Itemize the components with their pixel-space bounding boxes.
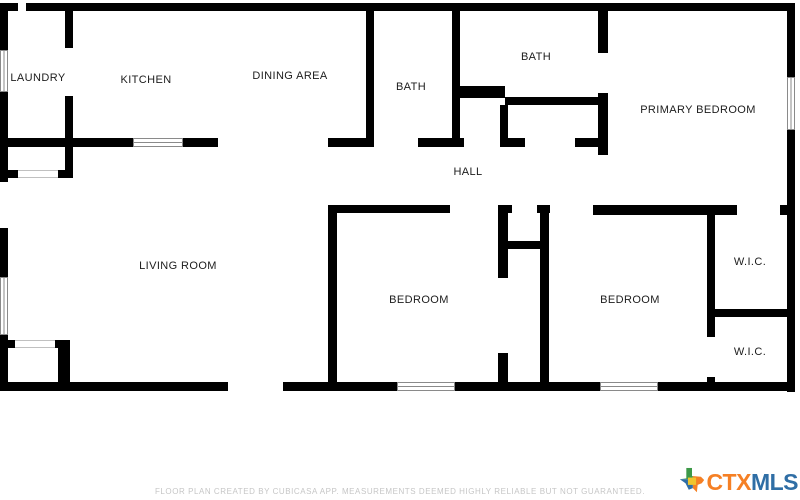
window-icon	[133, 138, 183, 147]
wall-segment	[508, 241, 540, 249]
wall-segment	[787, 3, 795, 77]
wall-segment	[537, 205, 550, 213]
wall-segment	[283, 382, 397, 391]
wall-segment	[418, 138, 464, 147]
wall-segment	[0, 228, 8, 277]
wall-segment	[8, 138, 133, 147]
wall-segment	[498, 353, 508, 382]
wall-segment	[658, 382, 795, 391]
wall-segment	[65, 8, 73, 48]
wall-segment	[455, 86, 505, 98]
room-label-bedroom-2: BEDROOM	[600, 294, 660, 306]
wall-segment	[452, 8, 460, 138]
room-label-wic-2: W.I.C.	[734, 346, 766, 358]
ctxmls-logo: CTX MLS	[679, 467, 798, 497]
window-icon	[0, 277, 8, 335]
wall-segment	[780, 205, 795, 215]
room-label-dining-area: DINING AREA	[252, 70, 327, 82]
wall-segment	[575, 138, 598, 147]
window-icon	[787, 77, 795, 130]
wall-segment	[505, 97, 603, 105]
wall-segment	[0, 3, 8, 50]
wall-segment	[455, 382, 600, 391]
wall-segment	[328, 138, 374, 147]
wall-segment	[58, 342, 70, 382]
wall-segment	[540, 213, 549, 382]
wall-segment	[0, 382, 228, 391]
wall-segment	[500, 105, 508, 138]
floor-plan-image: LAUNDRYKITCHENDINING AREABATHBATHPRIMARY…	[0, 0, 800, 500]
room-label-hall: HALL	[453, 166, 482, 178]
wall-segment	[598, 93, 608, 155]
room-label-living-room: LIVING ROOM	[139, 260, 217, 272]
room-label-bath-1: BATH	[396, 81, 426, 93]
floor-plan-canvas: LAUNDRYKITCHENDINING AREABATHBATHPRIMARY…	[0, 0, 800, 460]
wall-segment	[787, 130, 795, 392]
ctxmls-texas-icon	[679, 467, 705, 497]
ctxmls-logo-ctx-text: CTX	[706, 471, 751, 494]
wall-segment	[328, 205, 450, 213]
wall-segment	[500, 138, 525, 147]
wall-segment	[366, 8, 374, 138]
wall-segment	[707, 309, 795, 317]
wall-segment	[593, 205, 737, 215]
window-icon	[0, 50, 8, 92]
wall-segment	[498, 205, 512, 213]
room-label-bedroom-1: BEDROOM	[389, 294, 449, 306]
room-label-laundry: LAUNDRY	[10, 72, 65, 84]
wall-segment	[183, 138, 218, 147]
wall-segment	[0, 92, 8, 182]
room-label-kitchen: KITCHEN	[120, 74, 171, 86]
ctxmls-logo-mls-text: MLS	[751, 471, 798, 494]
room-label-bath-2: BATH	[521, 51, 551, 63]
window-icon	[397, 382, 455, 391]
wall-segment	[598, 8, 608, 53]
wall-segment	[55, 340, 70, 348]
wall-segment	[3, 340, 15, 348]
room-label-primary-bedroom: PRIMARY BEDROOM	[640, 104, 756, 116]
wall-segment	[26, 3, 795, 11]
wall-segment	[58, 170, 73, 178]
wall-segment	[65, 96, 73, 177]
door-opening-icon	[15, 340, 55, 348]
room-label-wic-1: W.I.C.	[734, 256, 766, 268]
wall-segment	[707, 215, 715, 337]
wall-segment	[707, 377, 715, 390]
wall-segment	[328, 213, 337, 382]
door-opening-icon	[18, 170, 58, 178]
wall-segment	[3, 170, 18, 178]
window-icon	[600, 382, 658, 391]
wall-segment	[498, 213, 508, 278]
